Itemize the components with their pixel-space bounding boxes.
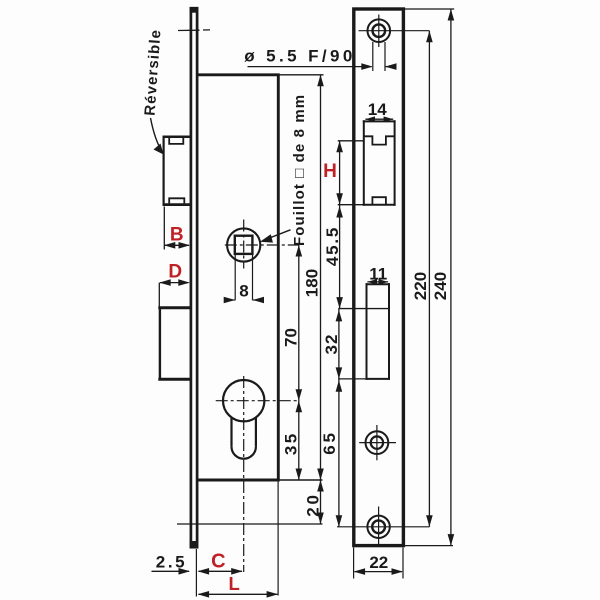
svg-text:32: 32 bbox=[322, 334, 341, 355]
svg-text:C: C bbox=[211, 551, 225, 573]
svg-text:D: D bbox=[168, 262, 182, 283]
svg-text:Fouillot □ de 8 mm: Fouillot □ de 8 mm bbox=[291, 94, 308, 246]
svg-text:22: 22 bbox=[369, 553, 388, 572]
svg-text:L: L bbox=[229, 573, 240, 594]
svg-text:ø 5.5 F/90: ø 5.5 F/90 bbox=[244, 47, 355, 66]
svg-text:8: 8 bbox=[239, 282, 248, 301]
svg-text:45.5: 45.5 bbox=[323, 226, 342, 266]
svg-text:220: 220 bbox=[411, 272, 430, 300]
svg-text:H: H bbox=[323, 161, 337, 182]
svg-text:20: 20 bbox=[303, 492, 322, 517]
svg-text:180: 180 bbox=[302, 269, 321, 297]
svg-text:11: 11 bbox=[369, 265, 387, 284]
svg-text:B: B bbox=[170, 225, 184, 246]
svg-text:14: 14 bbox=[368, 100, 387, 119]
svg-text:70: 70 bbox=[281, 328, 300, 347]
svg-text:35: 35 bbox=[281, 431, 300, 455]
svg-text:240: 240 bbox=[431, 272, 450, 300]
svg-text:65: 65 bbox=[320, 430, 339, 455]
svg-text:2.5: 2.5 bbox=[156, 552, 187, 571]
